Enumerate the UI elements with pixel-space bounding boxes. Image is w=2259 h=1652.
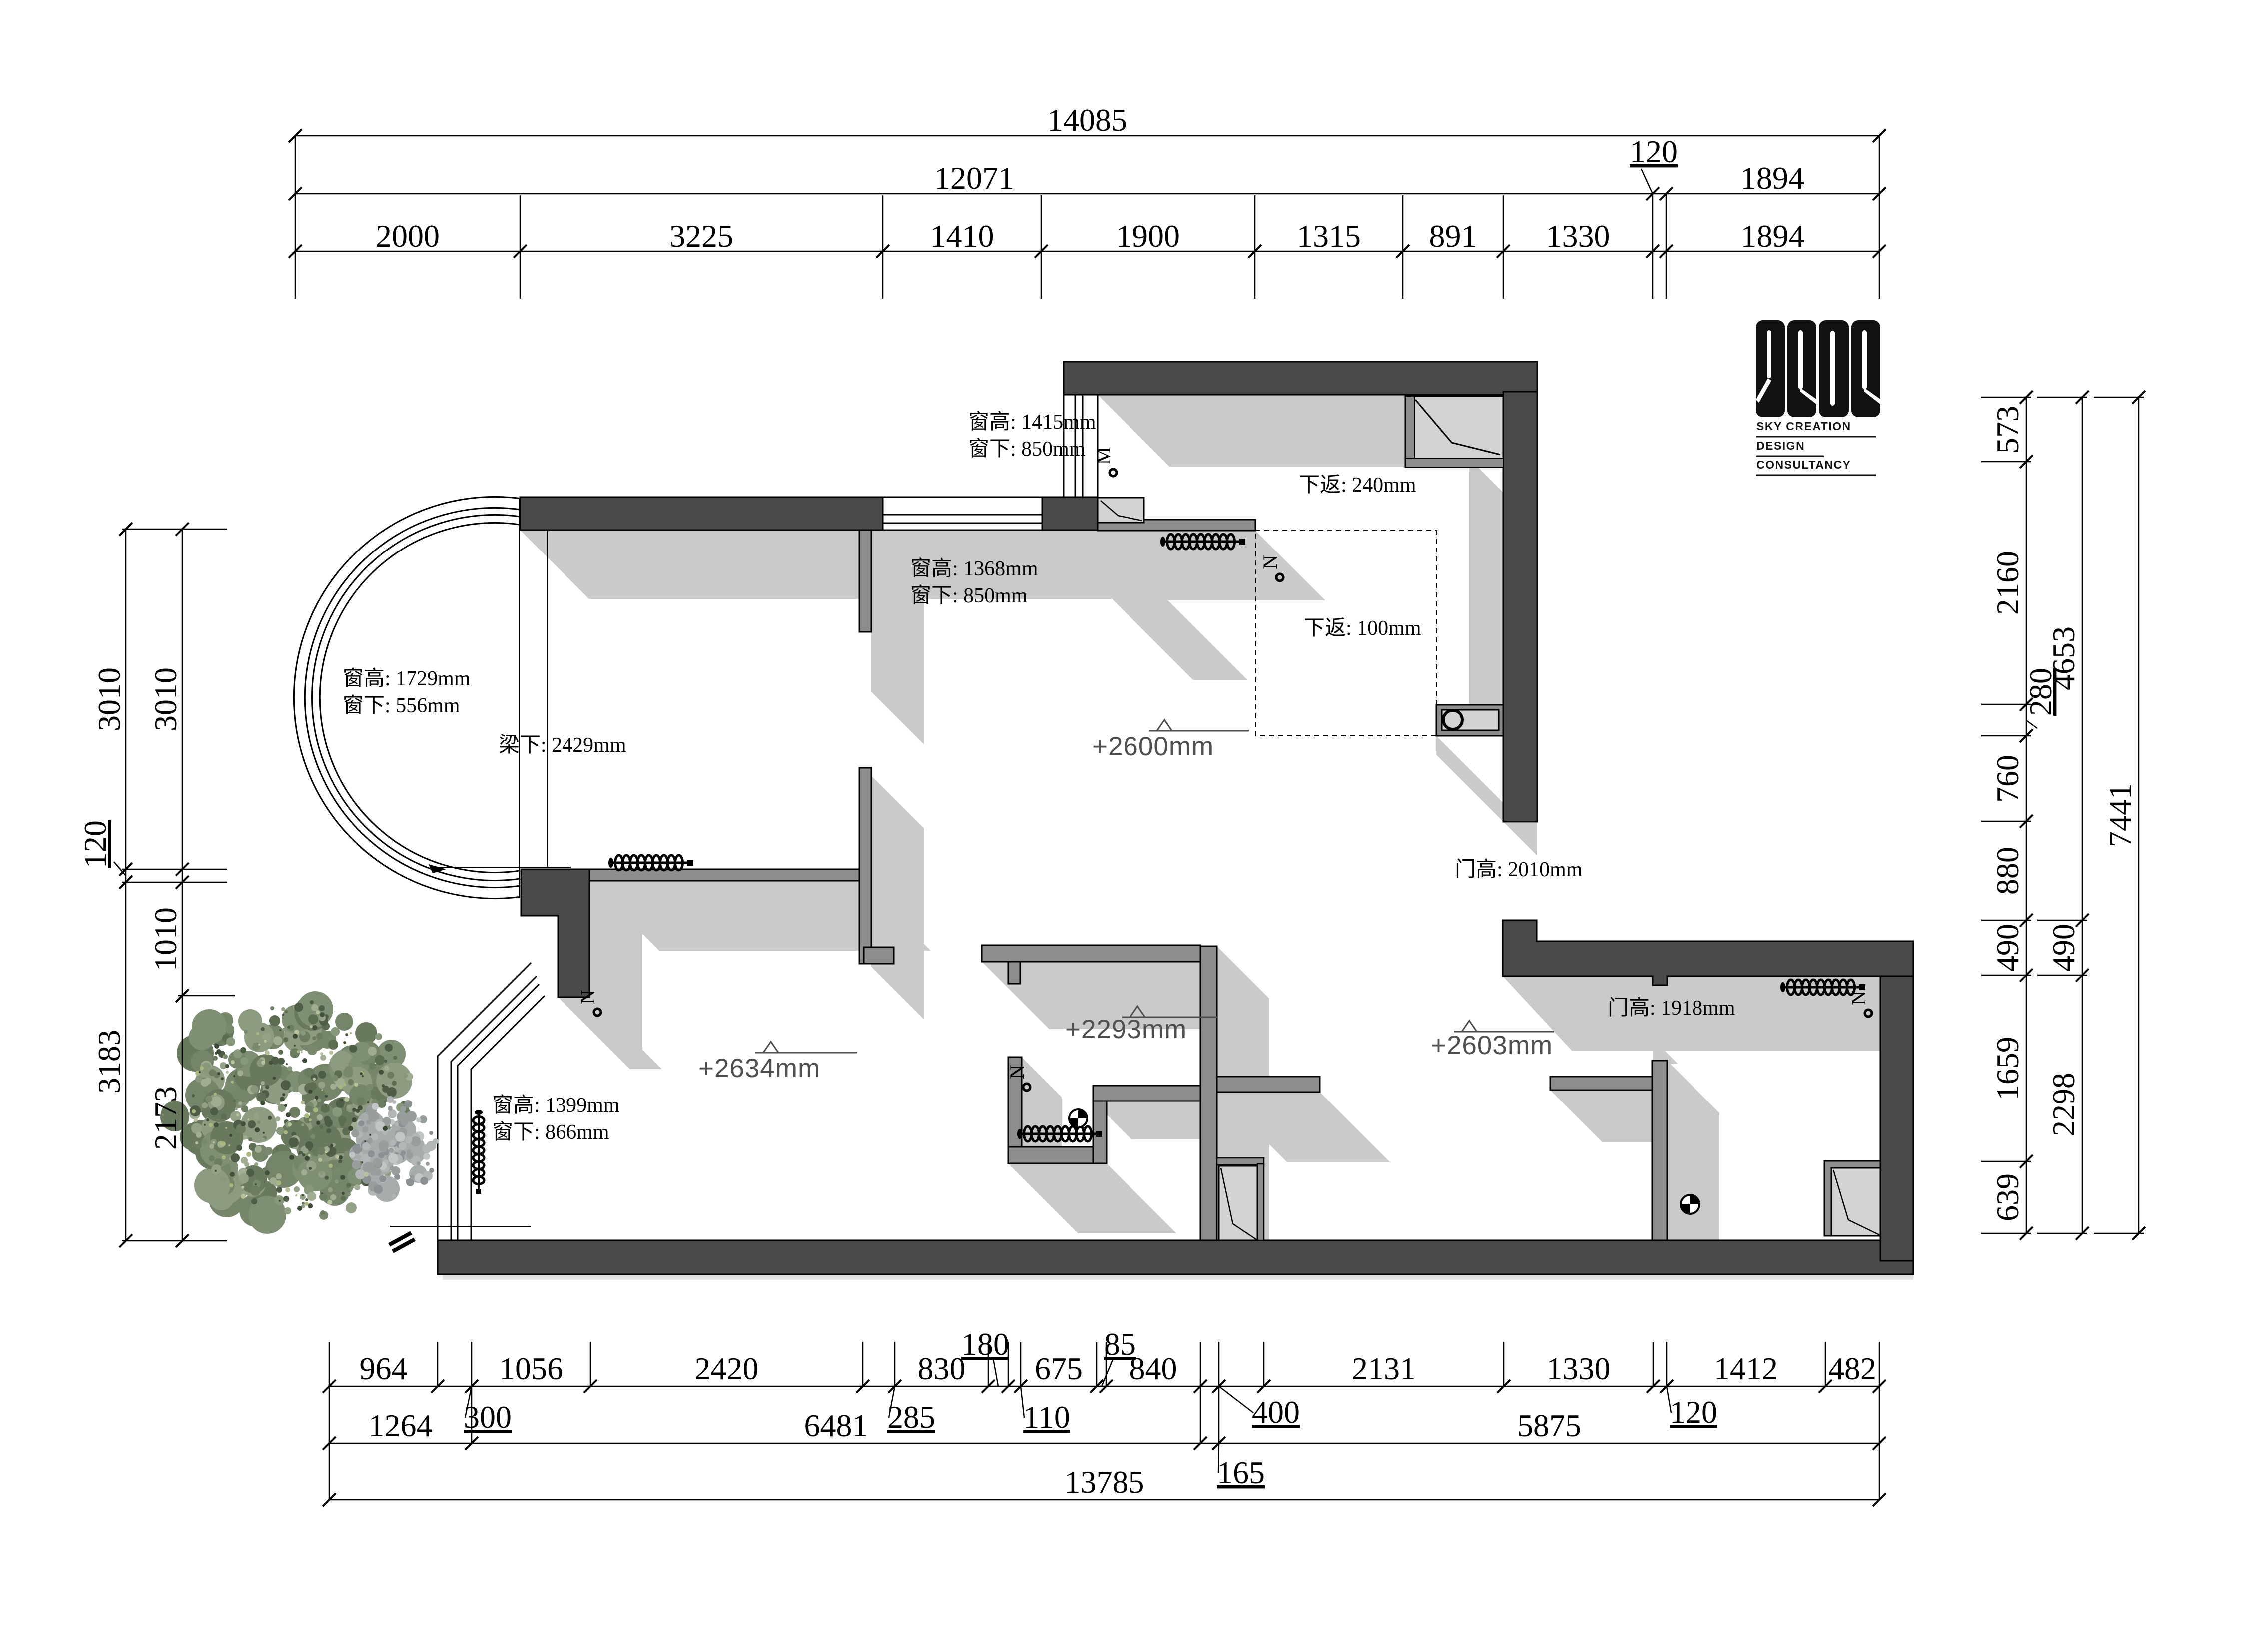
svg-text:13785: 13785 bbox=[1065, 1464, 1144, 1500]
svg-text:N: N bbox=[1259, 555, 1281, 569]
svg-text:1900: 1900 bbox=[1116, 218, 1180, 254]
svg-text:964: 964 bbox=[360, 1351, 408, 1386]
svg-text:675: 675 bbox=[1035, 1351, 1083, 1386]
svg-text:3010: 3010 bbox=[148, 667, 183, 731]
svg-text:1894: 1894 bbox=[1741, 218, 1805, 254]
svg-text:2298: 2298 bbox=[2046, 1073, 2081, 1136]
svg-text:840: 840 bbox=[1129, 1351, 1177, 1386]
svg-text:窗下: 850mm: 窗下: 850mm bbox=[910, 584, 1028, 607]
svg-text:窗高: 1368mm: 窗高: 1368mm bbox=[910, 557, 1038, 580]
svg-text:14085: 14085 bbox=[1047, 102, 1127, 138]
svg-text:300: 300 bbox=[464, 1399, 512, 1435]
svg-text:180: 180 bbox=[961, 1326, 1009, 1362]
svg-text:285: 285 bbox=[887, 1399, 935, 1435]
svg-text:639: 639 bbox=[1990, 1173, 2025, 1221]
svg-text:891: 891 bbox=[1429, 218, 1477, 254]
svg-text:1315: 1315 bbox=[1297, 218, 1361, 254]
svg-text:1410: 1410 bbox=[930, 218, 994, 254]
svg-text:165: 165 bbox=[1217, 1455, 1265, 1490]
svg-text:窗高: 1729mm: 窗高: 1729mm bbox=[343, 667, 471, 690]
svg-text:3183: 3183 bbox=[91, 1030, 127, 1094]
svg-text:120: 120 bbox=[77, 820, 113, 868]
svg-text:1010: 1010 bbox=[148, 907, 183, 971]
svg-text:门高: 1918mm: 门高: 1918mm bbox=[1608, 997, 1735, 1020]
svg-text:490: 490 bbox=[2046, 924, 2081, 972]
svg-text:+2603mm: +2603mm bbox=[1431, 1031, 1553, 1060]
svg-text:400: 400 bbox=[1252, 1394, 1300, 1430]
svg-text:N: N bbox=[576, 990, 599, 1004]
svg-text:110: 110 bbox=[1023, 1399, 1070, 1435]
svg-text:1659: 1659 bbox=[1990, 1037, 2025, 1101]
svg-text:SKY CREATION: SKY CREATION bbox=[1756, 420, 1851, 433]
svg-text:下返: 240mm: 下返: 240mm bbox=[1299, 474, 1416, 497]
svg-text:2160: 2160 bbox=[1990, 551, 2025, 615]
svg-text:窗下: 866mm: 窗下: 866mm bbox=[492, 1121, 609, 1144]
svg-text:6481: 6481 bbox=[804, 1408, 868, 1443]
svg-text:M: M bbox=[1092, 447, 1115, 465]
svg-text:2131: 2131 bbox=[1352, 1351, 1416, 1386]
svg-text:1894: 1894 bbox=[1740, 160, 1804, 196]
svg-text:2173: 2173 bbox=[148, 1086, 183, 1150]
svg-text:+2293mm: +2293mm bbox=[1065, 1015, 1187, 1044]
svg-text:12071: 12071 bbox=[934, 160, 1014, 196]
svg-text:2420: 2420 bbox=[695, 1351, 759, 1386]
svg-text:1330: 1330 bbox=[1546, 218, 1610, 254]
svg-text:3010: 3010 bbox=[91, 667, 127, 731]
svg-text:N: N bbox=[1847, 991, 1870, 1005]
svg-text:760: 760 bbox=[1990, 755, 2025, 803]
svg-text:窗下: 850mm: 窗下: 850mm bbox=[968, 438, 1086, 461]
svg-text:1412: 1412 bbox=[1714, 1351, 1778, 1386]
svg-text:280: 280 bbox=[2023, 668, 2058, 716]
svg-text:窗高: 1399mm: 窗高: 1399mm bbox=[492, 1094, 620, 1117]
svg-text:880: 880 bbox=[1990, 847, 2025, 895]
svg-text:85: 85 bbox=[1104, 1326, 1136, 1362]
svg-text:120: 120 bbox=[1630, 134, 1678, 169]
svg-text:5875: 5875 bbox=[1517, 1408, 1581, 1443]
svg-text:1056: 1056 bbox=[499, 1351, 563, 1386]
svg-text:窗下: 556mm: 窗下: 556mm bbox=[343, 694, 460, 717]
svg-text:CONSULTANCY: CONSULTANCY bbox=[1756, 458, 1851, 471]
svg-text:下返: 100mm: 下返: 100mm bbox=[1304, 617, 1421, 640]
svg-text:120: 120 bbox=[1670, 1394, 1717, 1430]
svg-text:+2634mm: +2634mm bbox=[698, 1054, 820, 1083]
svg-text:490: 490 bbox=[1990, 924, 2025, 972]
svg-text:DESIGN: DESIGN bbox=[1756, 439, 1805, 452]
svg-text:门高: 2010mm: 门高: 2010mm bbox=[1455, 858, 1583, 881]
svg-text:梁下: 2429mm: 梁下: 2429mm bbox=[499, 734, 626, 757]
svg-text:7441: 7441 bbox=[2102, 783, 2138, 847]
svg-text:窗高: 1415mm: 窗高: 1415mm bbox=[968, 411, 1096, 434]
svg-text:573: 573 bbox=[1990, 406, 2025, 454]
svg-text:2000: 2000 bbox=[376, 218, 440, 254]
svg-text:N: N bbox=[1006, 1065, 1028, 1079]
svg-text:+2600mm: +2600mm bbox=[1092, 732, 1214, 761]
svg-text:1330: 1330 bbox=[1547, 1351, 1611, 1386]
svg-text:1264: 1264 bbox=[369, 1408, 433, 1443]
svg-text:830: 830 bbox=[918, 1351, 966, 1386]
svg-text:3225: 3225 bbox=[669, 218, 733, 254]
svg-text:482: 482 bbox=[1828, 1351, 1876, 1386]
